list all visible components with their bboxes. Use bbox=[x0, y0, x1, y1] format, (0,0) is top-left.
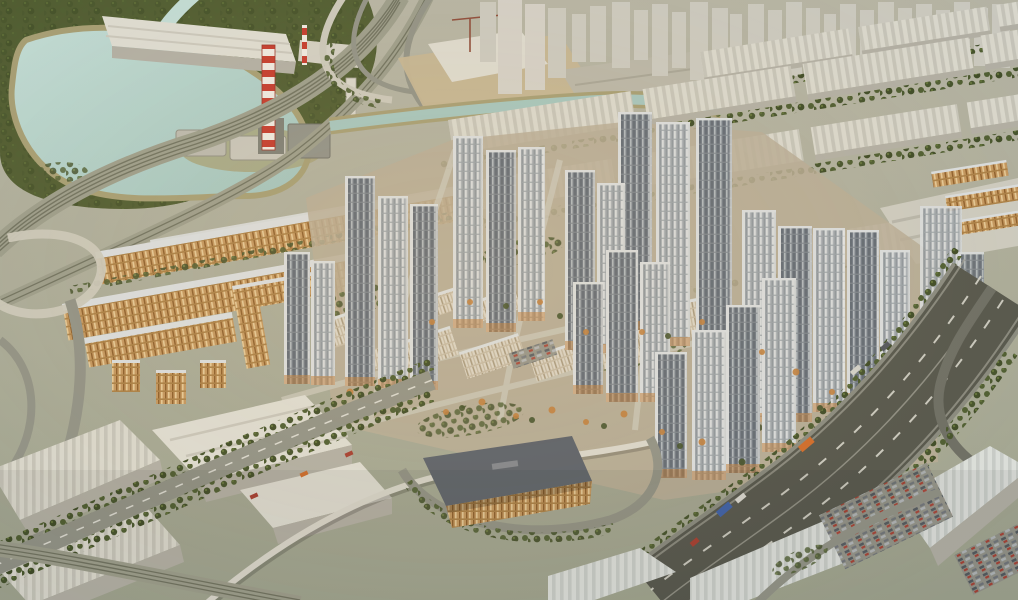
aerial-cityscape-svg bbox=[0, 0, 1018, 600]
aerial-render-image: Aerial architectural rendering of a mast… bbox=[0, 0, 1018, 600]
lighting-overlay bbox=[0, 0, 1018, 600]
